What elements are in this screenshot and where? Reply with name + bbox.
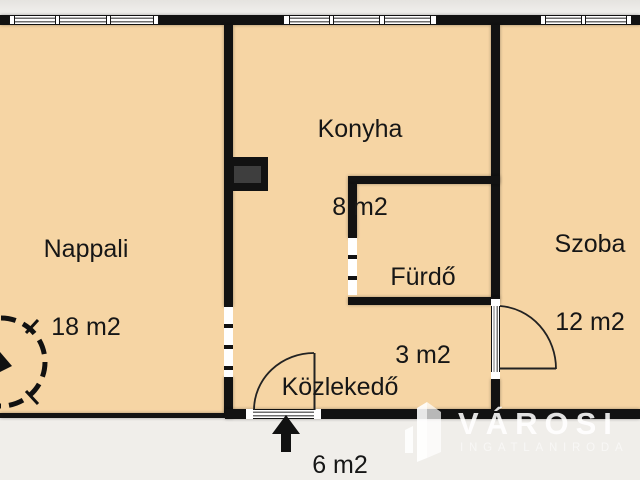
background-top-band [0,0,640,15]
window-konyha-mullion-1 [329,15,334,25]
room-name: Közlekedő [256,374,424,400]
window-szoba-end-left [540,15,546,25]
window-szoba-end-right [626,15,632,25]
window-nappali [15,15,153,25]
window-konyha-end-right [430,15,437,25]
room-area: 6 m2 [256,452,424,478]
entry-door-jamb-left [246,409,253,419]
room-name: Konyha [286,116,434,142]
room-name: Nappali [12,236,160,262]
room-area: 18 m2 [12,314,160,340]
room-label-nappali: Nappali 18 m2 [12,184,160,392]
window-nappali-mullion-2 [106,15,111,25]
room-label-szoba: Szoba 12 m2 [516,179,640,387]
window-szoba [546,15,626,25]
brand-subtitle: INGATLANIRODA [460,442,640,454]
chimney-block-inner [234,166,261,183]
brand-title: VÁROSI [458,406,640,442]
window-konyha-mullion-2 [379,15,385,25]
window-nappali-end-left [9,15,15,25]
window-konyha-end-left [283,15,290,25]
window-konyha [290,15,430,25]
doorway-nappali-kozlekedo [224,307,233,377]
room-name: Szoba [516,231,640,257]
floor-plan-canvas: Nappali 18 m2 Konyha 8 m2 Szoba 12 m2 Fü… [0,0,640,480]
wall-bottom-nappali [0,413,233,418]
room-area: 12 m2 [516,309,640,335]
window-nappali-end-right [153,15,159,25]
window-szoba-mullion-1 [581,15,586,25]
room-name: Fürdő [349,264,497,290]
wall-nappali-divider-lower [224,377,233,413]
room-label-kozlekedo: Közlekedő 6 m2 [256,322,424,480]
window-nappali-mullion-1 [55,15,60,25]
chimney-block [229,157,268,191]
